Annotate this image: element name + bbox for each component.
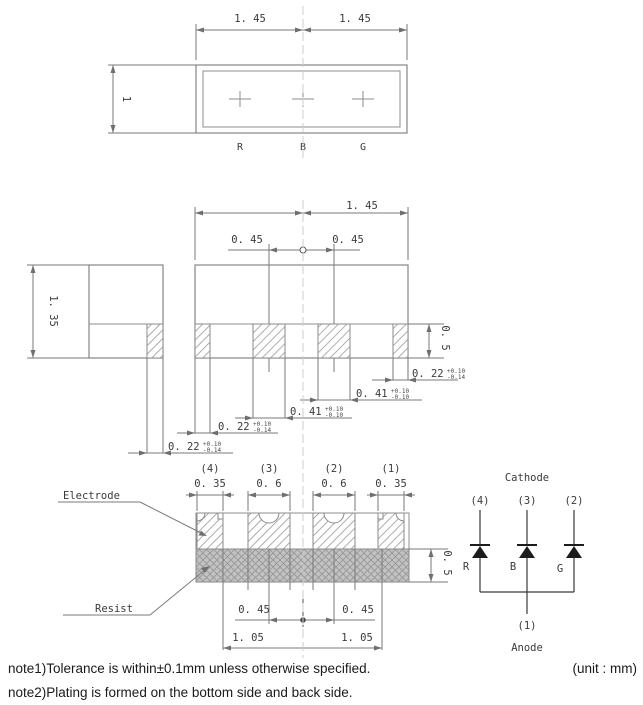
notch-pad-4-step — [218, 513, 223, 519]
pin-1-label: (1) — [518, 620, 537, 632]
note-2: note2)Plating is formed on the bottom si… — [8, 685, 352, 700]
bottom-outer-right-label: 1. 05 — [341, 632, 373, 644]
callout-5-tol-minus: -0.14 — [447, 374, 465, 381]
callout-3-tol-minus: -0.10 — [325, 412, 343, 419]
bottom-view: (4) (3) (2) (1) 0. 35 0. 6 0. 6 0. 35 — [58, 463, 453, 651]
diode-label-b: B — [510, 561, 516, 573]
die-cross-g — [352, 91, 374, 107]
bottom-inner-right-label: 0. 45 — [342, 604, 374, 616]
callout-4-tol-minus: -0.10 — [391, 394, 409, 401]
back-pad-a — [195, 324, 210, 358]
back-width-label: 1. 45 — [346, 200, 378, 212]
diode-r — [470, 510, 490, 592]
cathode-label: Cathode — [505, 472, 549, 484]
unit-label: (unit : mm) — [572, 661, 637, 676]
resist-height-label: 0. 5 — [441, 550, 453, 575]
back-pad-b — [253, 324, 285, 358]
side-view-pad — [147, 324, 163, 358]
pad-width-1: 0. 35 — [375, 478, 407, 490]
callout-2-tol-minus: -0.14 — [253, 427, 271, 434]
notch-pad-1-step — [378, 513, 383, 519]
pad-number-2: (2) — [325, 463, 344, 475]
bottom-inner-left-label: 0. 45 — [238, 604, 270, 616]
pin-3-label: (3) — [518, 495, 537, 507]
side-height-label: 1. 35 — [47, 295, 59, 327]
die-label-g: G — [360, 142, 366, 153]
callout-3-value: 0. 41 — [290, 406, 322, 418]
pad-width-3: 0. 6 — [256, 478, 281, 490]
pad-number-1: (1) — [382, 463, 401, 475]
led-package-dimension-drawing: 1. 45 1. 45 R B G 1 — [0, 0, 643, 705]
side-view: 1. 35 — [27, 265, 163, 358]
pin-2-label: (2) — [565, 495, 584, 507]
callout-1-value: 0. 22 — [168, 441, 200, 453]
pad-width-2: 0. 6 — [321, 478, 346, 490]
diode-label-r: R — [463, 561, 470, 573]
top-view: 1. 45 1. 45 R B G 1 — [108, 13, 407, 153]
callout-5-value: 0. 22 — [412, 368, 444, 380]
back-pitch-left-label: 0. 45 — [231, 234, 263, 246]
diode-b — [517, 510, 537, 592]
pad-width-4: 0. 35 — [194, 478, 226, 490]
drawing-svg: 1. 45 1. 45 R B G 1 — [0, 0, 643, 705]
bottom-outer-left-label: 1. 05 — [232, 632, 264, 644]
circuit-diagram: Cathode (4) (3) (2) R B G (1) — [463, 472, 584, 654]
callout-1-tol-minus: -0.14 — [203, 447, 221, 454]
back-view: 1. 45 0. 45 0. 45 0. 5 — [195, 200, 451, 372]
diode-g — [564, 510, 584, 592]
back-band-height-label: 0. 5 — [439, 325, 451, 350]
back-pitch-right-label: 0. 45 — [332, 234, 364, 246]
diode-label-g: G — [557, 563, 563, 575]
note-1: note1)Tolerance is within±0.1mm unless o… — [8, 661, 370, 676]
callout-2-value: 0. 22 — [218, 421, 250, 433]
anode-label: Anode — [511, 642, 543, 654]
callout-4-value: 0. 41 — [356, 388, 388, 400]
back-pad-d — [393, 324, 408, 358]
electrode-label: Electrode — [63, 490, 120, 502]
notes: note1)Tolerance is within±0.1mm unless o… — [8, 661, 637, 700]
pad-number-4: (4) — [201, 463, 220, 475]
pin-4-label: (4) — [471, 495, 490, 507]
pad-number-3: (3) — [260, 463, 279, 475]
die-label-r: R — [237, 142, 244, 153]
die-cross-r — [229, 91, 251, 107]
top-depth-label: 1 — [120, 96, 132, 102]
pad-width-callouts: 0. 22 +0.10 -0.14 0. 22 +0.10 -0.14 0. 4… — [128, 358, 465, 456]
resist-label: Resist — [95, 603, 133, 615]
back-view-outline — [195, 265, 408, 358]
back-pad-c — [318, 324, 350, 358]
top-dim-right-label: 1. 45 — [339, 13, 371, 25]
top-dim-left-label: 1. 45 — [234, 13, 266, 25]
